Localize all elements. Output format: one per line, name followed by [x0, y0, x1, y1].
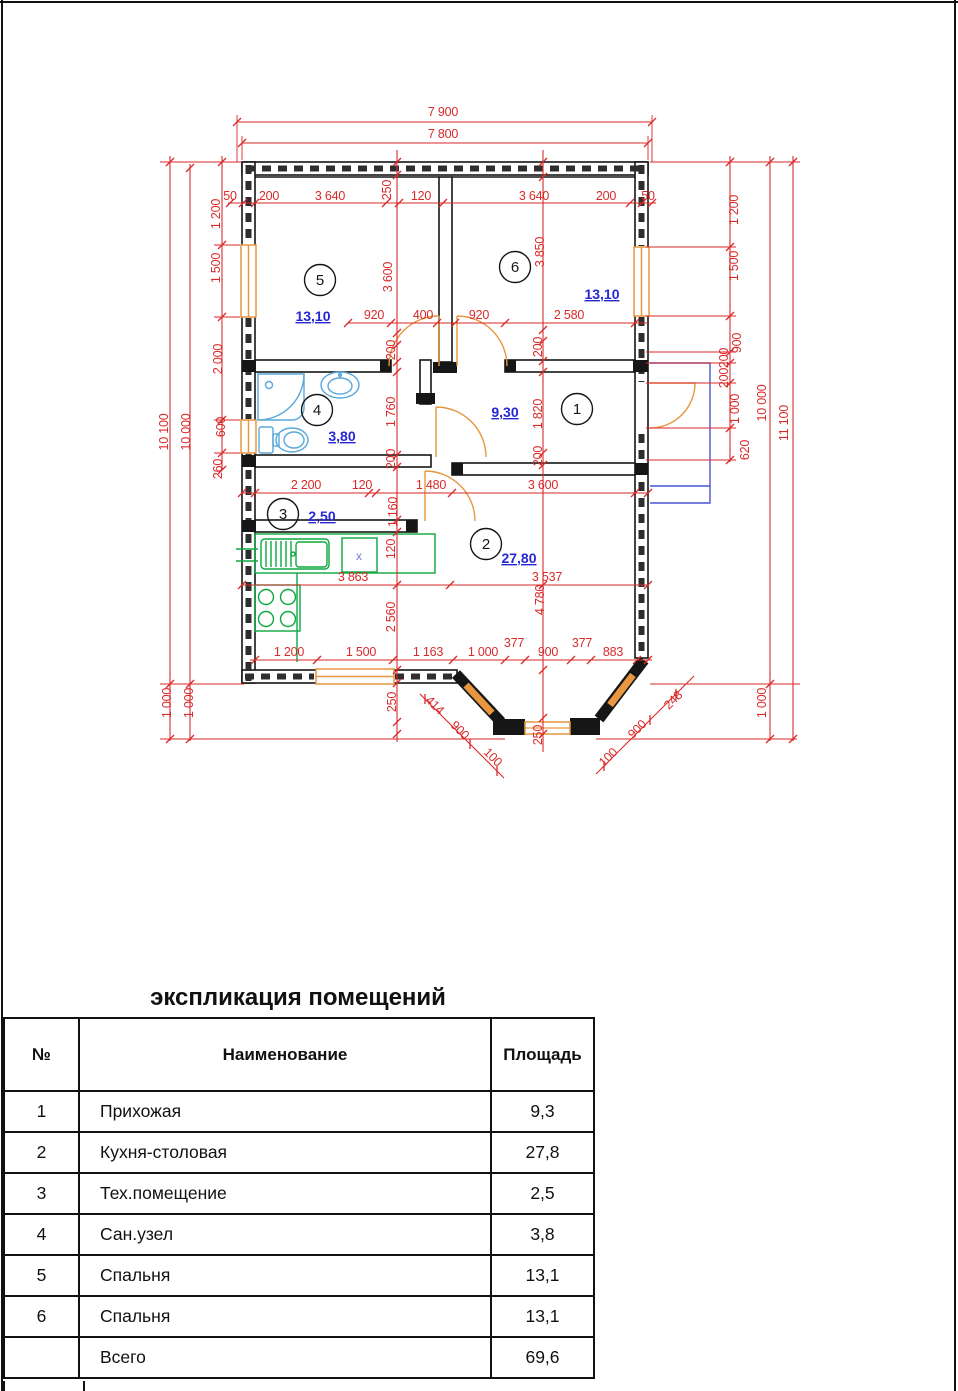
dimension-label: 3 537 [532, 570, 563, 584]
dimension-label: 1 160 [386, 497, 400, 528]
dimension-label: 1 760 [384, 397, 398, 428]
cell-num: 6 [4, 1296, 79, 1337]
dimension-label: 120 [352, 478, 373, 492]
dimension-label: 120 [411, 189, 432, 203]
dimension-label: 3 600 [528, 478, 559, 492]
cell-name: Всего [79, 1337, 491, 1378]
dimension-label: 600 [214, 417, 228, 438]
dimension-label: 1 000 [728, 394, 742, 425]
dimension-label: 50 [641, 189, 655, 203]
dimension-label: 1 000 [182, 688, 196, 719]
dimension-label: 250 [380, 180, 394, 201]
room-number: 6 [511, 259, 519, 276]
cell-name: Прихожая [79, 1091, 491, 1132]
dimension-label: 3 850 [533, 237, 547, 268]
dimension-label: 3 640 [315, 189, 346, 203]
room-area-label: 2,50 [308, 508, 335, 524]
cell-name: Кухня-столовая [79, 1132, 491, 1173]
dimension-label: 248 [661, 688, 685, 712]
dimension-label: 377 [572, 636, 593, 650]
dimension-label: 414 [423, 693, 447, 717]
table-title: экспликация помещений [3, 984, 593, 1012]
explication-table: № Наименование Площадь 1Прихожая9,32Кухн… [3, 1017, 595, 1379]
stove-fixture [255, 585, 300, 631]
dimension-label: 200 [531, 337, 545, 358]
dimension-label: 1 200 [727, 195, 741, 226]
cell-area: 69,6 [491, 1337, 594, 1378]
dimension-label: 1 200 [209, 199, 223, 230]
cell-num [4, 1337, 79, 1378]
table-row: 4Сан.узел3,8 [4, 1214, 594, 1255]
dimension-label: 3 600 [381, 262, 395, 293]
dimension-label: 900 [625, 717, 649, 741]
toilet-fixture [259, 427, 308, 453]
dimension-label: 3 863 [338, 570, 369, 584]
cell-name: Сан.узел [79, 1214, 491, 1255]
kitchen-fixtures [236, 534, 435, 662]
room-area-label: 13,10 [295, 308, 330, 324]
dimension-label: 900 [538, 645, 559, 659]
dimension-label: 1 500 [209, 253, 223, 284]
cell-area: 9,3 [491, 1091, 594, 1132]
dimension-label: 1 000 [160, 688, 174, 719]
cell-name: Спальня [79, 1255, 491, 1296]
dimension-label: 1 820 [531, 399, 545, 430]
header-num: № [4, 1018, 79, 1091]
door-bathroom [436, 407, 486, 457]
cell-num: 1 [4, 1091, 79, 1132]
dimension-label: 620 [738, 440, 752, 461]
dimension-label: 250 [531, 725, 545, 746]
dimension-label: 120 [384, 539, 398, 560]
table-row: 3Тех.помещение2,5 [4, 1173, 594, 1214]
table-body: 1Прихожая9,32Кухня-столовая27,83Тех.поме… [4, 1091, 594, 1378]
dimension-label: 200 [384, 449, 398, 470]
dimension-label: 50 [223, 189, 237, 203]
dimension-label: 2 000 [211, 344, 225, 375]
cell-area: 27,8 [491, 1132, 594, 1173]
cell-area: 13,1 [491, 1296, 594, 1337]
cell-name: Тех.помещение [79, 1173, 491, 1214]
dimension-label: 10 100 [157, 413, 171, 450]
cell-area: 13,1 [491, 1255, 594, 1296]
header-name: Наименование [79, 1018, 491, 1091]
header-area: Площадь [491, 1018, 594, 1091]
dimension-label: 1 500 [727, 251, 741, 282]
dimension-label: 200 [531, 446, 545, 467]
room-number: 4 [313, 402, 321, 419]
dimension-label: 1 000 [468, 645, 499, 659]
dimension-label: 10 000 [755, 384, 769, 421]
floor-plan: 7 9007 800502003 6402501203 640200503 60… [0, 0, 958, 975]
dimension-label: 200 [259, 189, 280, 203]
door-entrance [650, 383, 695, 428]
cell-num: 2 [4, 1132, 79, 1173]
table-row: 5Спальня13,1 [4, 1255, 594, 1296]
room-area-label: 9,30 [491, 404, 518, 420]
room-number: 5 [316, 272, 324, 289]
table-cut-stub [3, 1381, 5, 1391]
sink-fixture [321, 372, 359, 398]
kitchen-counter [255, 534, 435, 573]
dimension-label: 1 200 [274, 645, 305, 659]
dimension-label: 7 800 [428, 127, 459, 141]
dimension-label: 920 [364, 308, 385, 322]
dimension-label: 920 [469, 308, 490, 322]
dimension-label: 200 [717, 348, 731, 369]
dimension-label: 200 [717, 368, 731, 389]
dimension-label: 883 [603, 645, 624, 659]
dimension-label: 1 480 [416, 478, 447, 492]
dimension-label: 400 [413, 308, 434, 322]
dimension-label: 10 000 [179, 413, 193, 450]
dimension-label: 11 100 [777, 405, 791, 441]
dimension-label: 250 [385, 692, 399, 713]
dimension-label: 260 [211, 459, 225, 480]
dimension-label: 1 000 [755, 688, 769, 719]
dimension-label: 1 163 [413, 645, 444, 659]
dimension-label: 377 [504, 636, 525, 650]
room-number: 2 [482, 536, 490, 553]
porch [650, 363, 710, 503]
table-row: Всего69,6 [4, 1337, 594, 1378]
table-row: 1Прихожая9,3 [4, 1091, 594, 1132]
room-area-label: 13,10 [584, 286, 619, 302]
cell-name: Спальня [79, 1296, 491, 1337]
appliance-x-label: x [356, 549, 362, 563]
dimension-label: 200 [384, 340, 398, 361]
room-number: 1 [573, 401, 581, 418]
room-number: 3 [279, 506, 287, 523]
table-row: 2Кухня-столовая27,8 [4, 1132, 594, 1173]
shower-fixture [258, 374, 304, 420]
room-area-label: 3,80 [328, 428, 355, 444]
dimension-label: 100 [481, 745, 505, 769]
dimension-label: 1 500 [346, 645, 377, 659]
bay-window [456, 660, 644, 735]
dimension-label: 200 [596, 189, 617, 203]
cell-num: 4 [4, 1214, 79, 1255]
dimension-label: 3 640 [519, 189, 550, 203]
cell-area: 3,8 [491, 1214, 594, 1255]
dimension-label: 900 [730, 333, 744, 354]
drawing-sheet: 7 9007 800502003 6402501203 640200503 60… [0, 0, 958, 1391]
dimension-label: 7 900 [428, 105, 459, 119]
dimension-label: 100 [596, 745, 620, 769]
dimension-label: 4 780 [533, 585, 547, 616]
kitchen-sink [261, 539, 329, 569]
dimension-label: 2 580 [554, 308, 585, 322]
dimension-label: 2 560 [384, 602, 398, 633]
room-area-label: 27,80 [501, 550, 536, 566]
table-row: 6Спальня13,1 [4, 1296, 594, 1337]
dimension-label: 2 200 [291, 478, 322, 492]
cell-area: 2,5 [491, 1173, 594, 1214]
cell-num: 5 [4, 1255, 79, 1296]
cell-num: 3 [4, 1173, 79, 1214]
table-cut-stub [83, 1381, 85, 1391]
